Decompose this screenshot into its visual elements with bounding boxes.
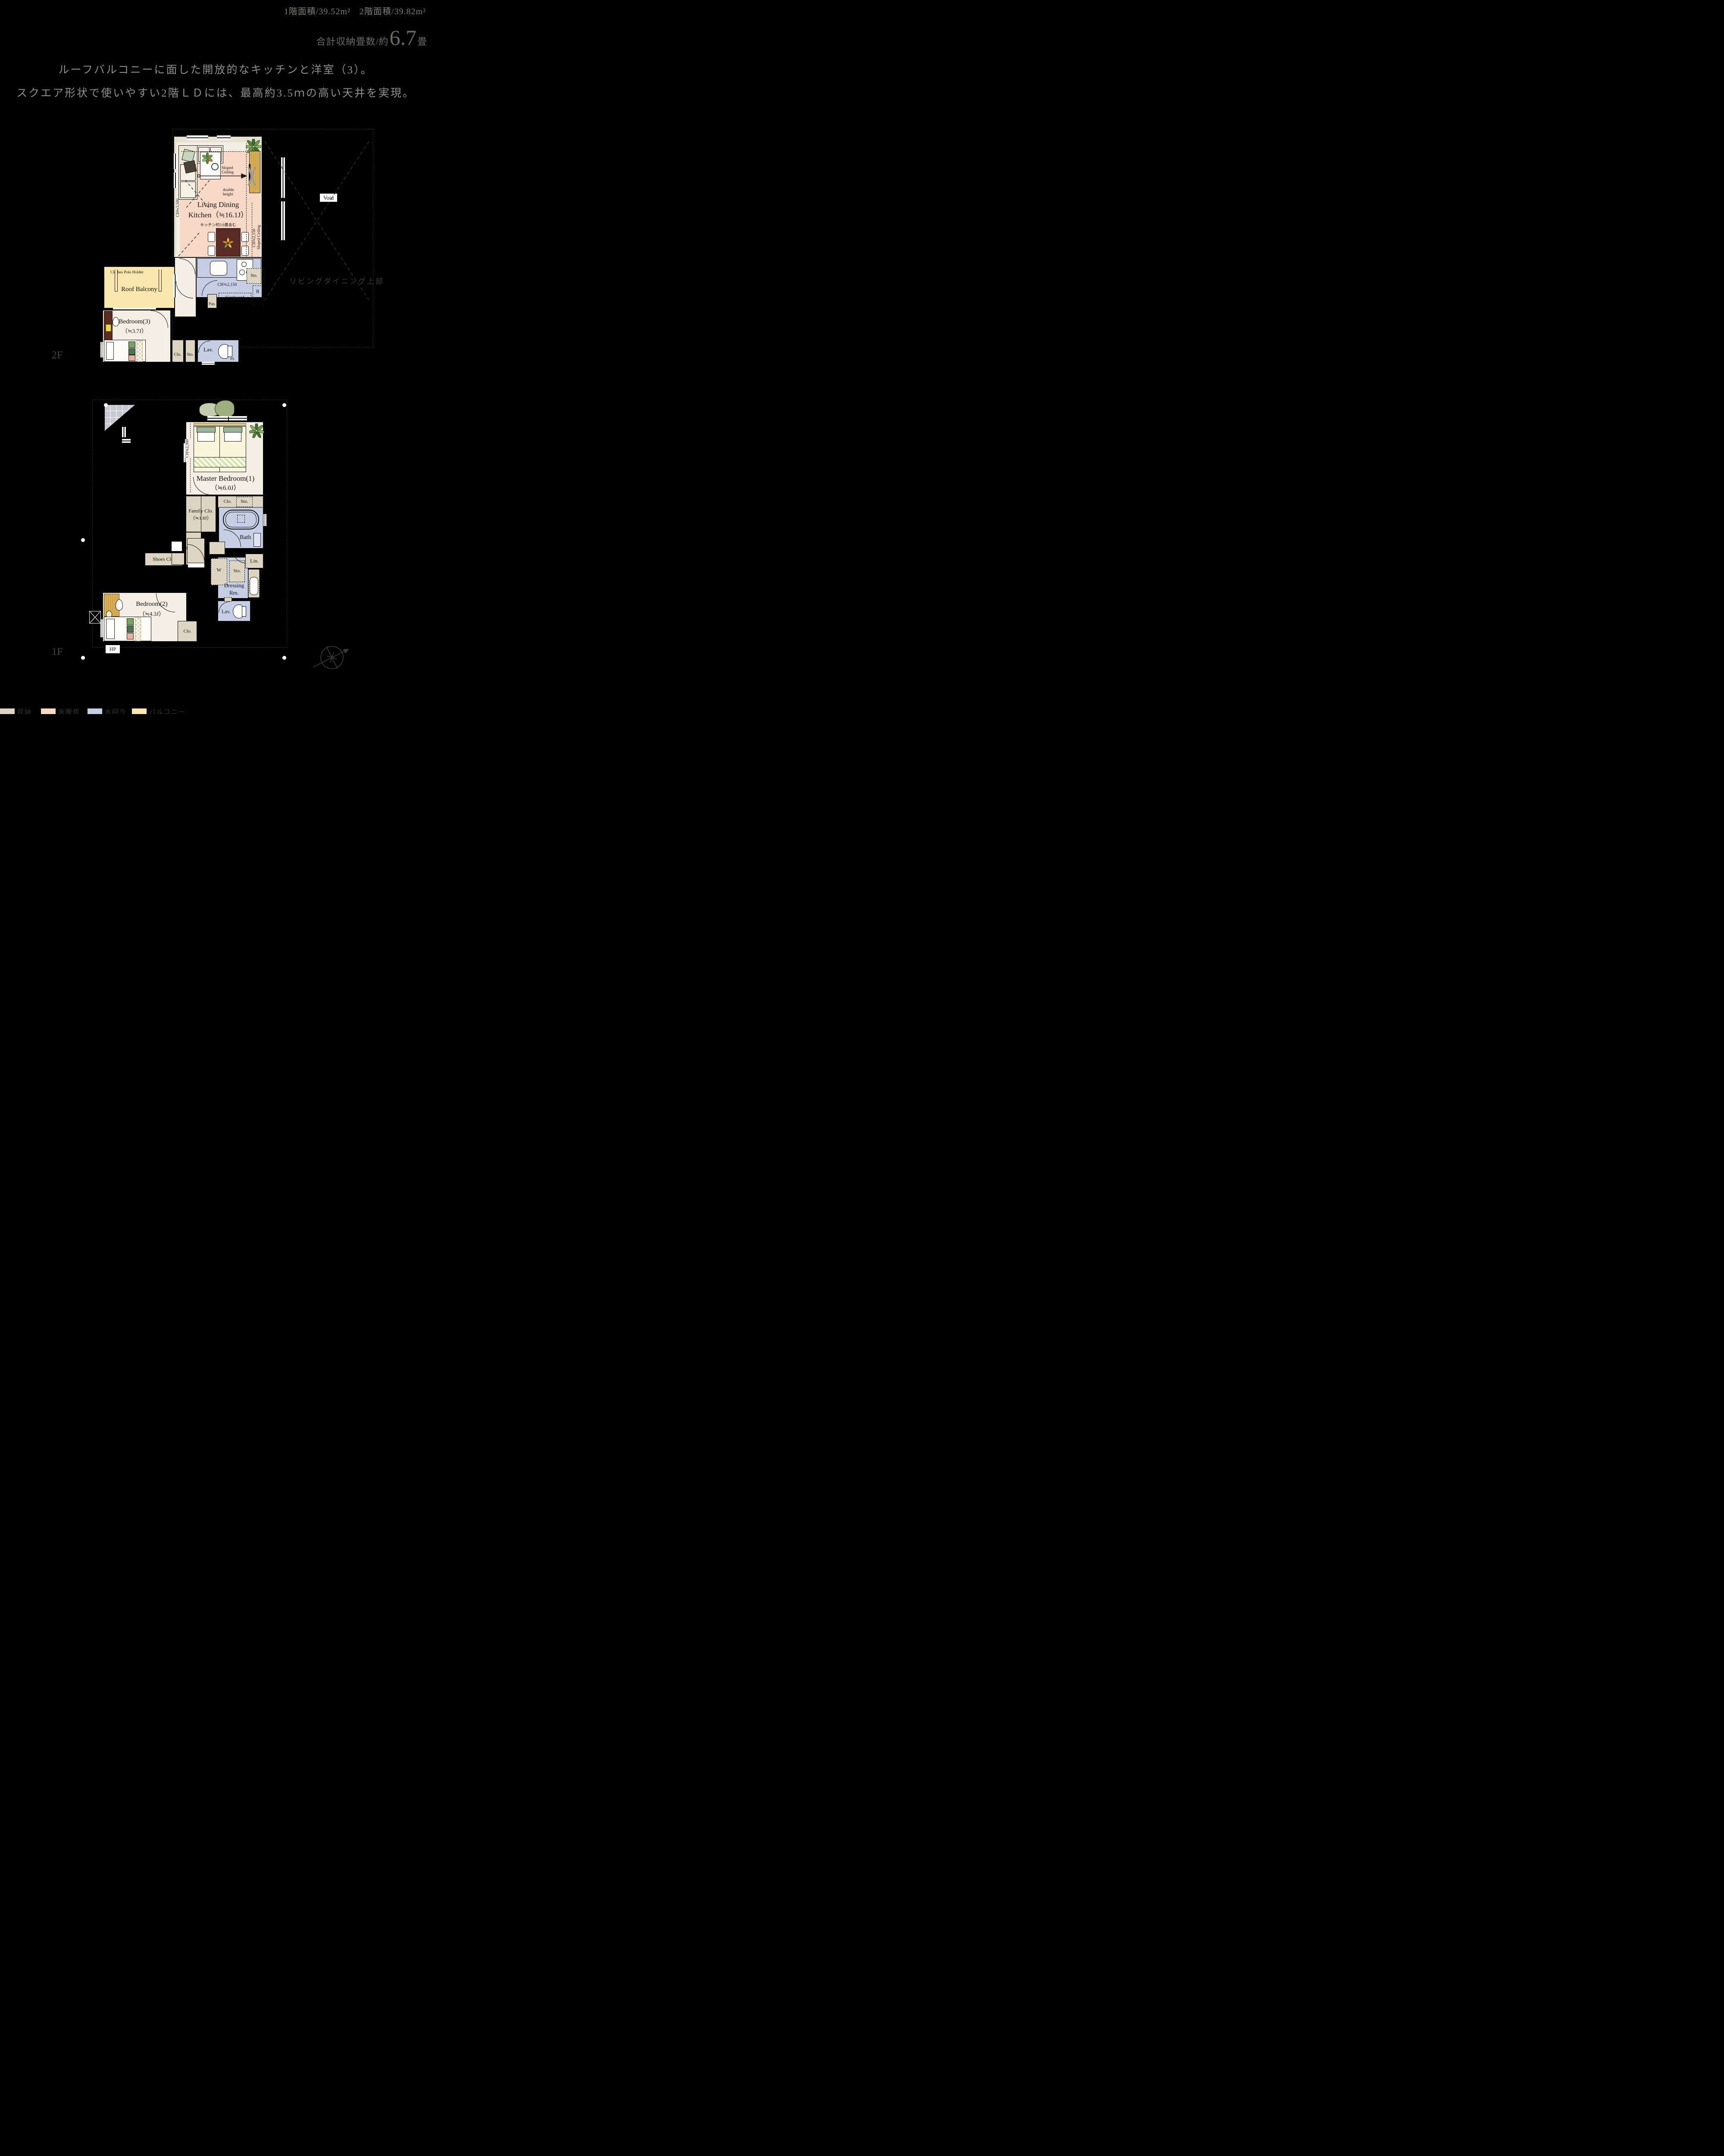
legend-swatch-storage bbox=[0, 708, 15, 714]
ldk-dash-diagonals bbox=[178, 180, 210, 256]
legend-label-balcony: バルコニー bbox=[149, 707, 186, 714]
legend-item-storage: 収納 bbox=[0, 707, 32, 714]
sloped-ceiling-arrow bbox=[197, 174, 247, 178]
legend-item-balcony: バルコニー bbox=[132, 707, 186, 714]
legend-swatch-floor-heating bbox=[41, 708, 56, 714]
void-x-lines bbox=[265, 141, 369, 300]
legend-swatch-balcony bbox=[132, 708, 147, 714]
floorplan-page: 1階面積/39.52m² 2階面積/39.82m² 合計収納畳数/約 6.7 畳… bbox=[0, 0, 431, 714]
legend-label-water: 水回り bbox=[105, 707, 127, 714]
legend-item-floor-heating: 床暖房 bbox=[41, 707, 80, 714]
compass-icon bbox=[313, 641, 348, 676]
legend-item-water: 水回り bbox=[88, 707, 127, 714]
legend-swatch-water bbox=[88, 708, 102, 714]
annotation-lines-layer bbox=[0, 0, 431, 714]
legend-label-storage: 収納 bbox=[17, 707, 32, 714]
legend-label-floor-heating: 床暖房 bbox=[58, 707, 80, 714]
